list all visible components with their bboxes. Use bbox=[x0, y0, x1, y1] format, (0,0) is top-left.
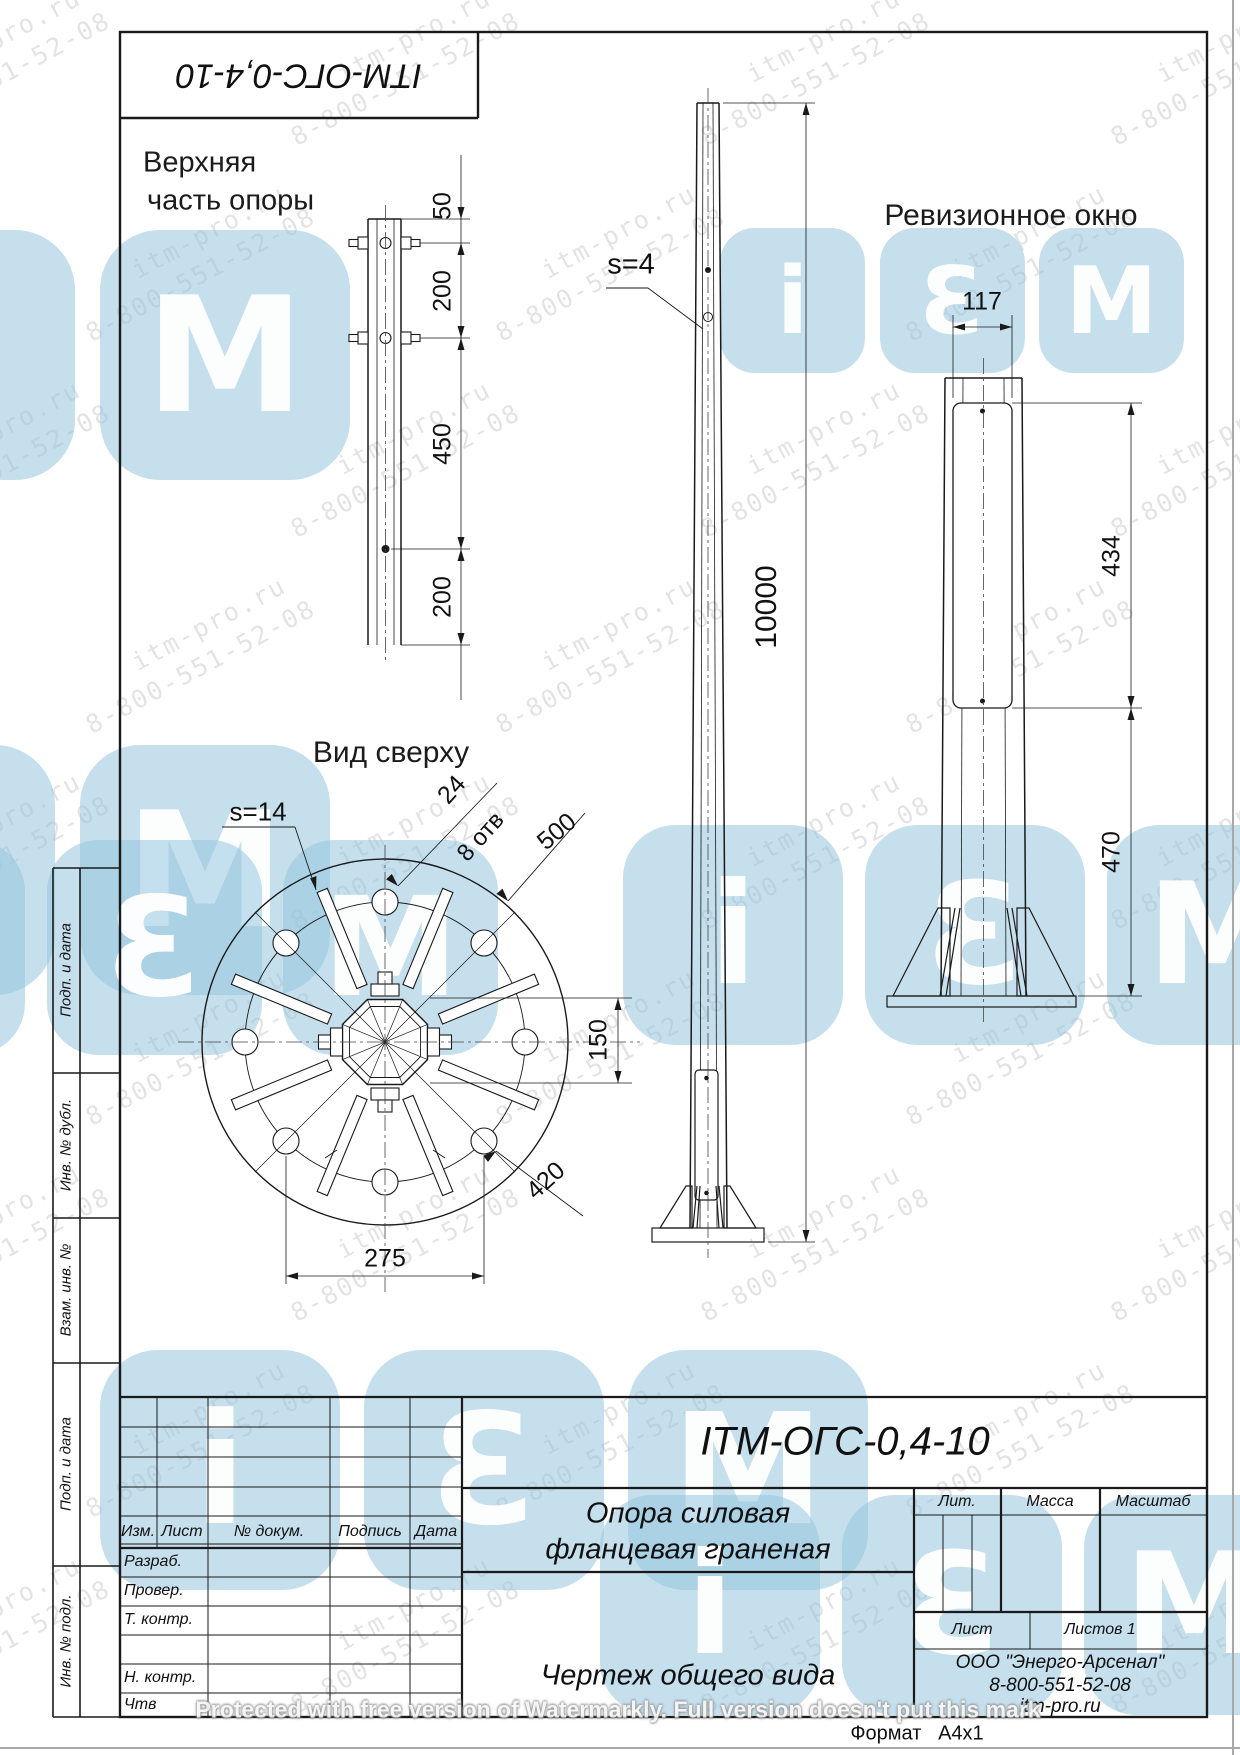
upper-view-title-line1: Верхняя bbox=[143, 147, 256, 180]
mass-header: Масса bbox=[1026, 1493, 1073, 1511]
dim-150: 150 bbox=[585, 1019, 614, 1061]
title-block-designation: ITM-ОГС-0,4-10 bbox=[700, 1420, 989, 1465]
staff-razrab: Разраб. bbox=[124, 1553, 182, 1571]
plan-view-title: Вид сверху bbox=[313, 736, 469, 770]
rev-header-date: Дата bbox=[415, 1523, 457, 1541]
revision-view bbox=[887, 315, 1142, 1022]
wall-thickness-label: s=4 bbox=[607, 249, 655, 282]
rev-header-list: Лист bbox=[161, 1523, 202, 1541]
sheet-label: Лист bbox=[951, 1621, 992, 1639]
staff-n-kontr: Н. контр. bbox=[124, 1669, 196, 1687]
dim-50: 50 bbox=[429, 192, 458, 220]
top-stamp-designation: ITM-ОГС-0,4-10 bbox=[176, 56, 422, 95]
staff-utv: Чтв bbox=[124, 1696, 156, 1714]
staff-t-kontr: Т. контр. bbox=[124, 1611, 193, 1629]
upper-view-title-line2: часть опоры bbox=[147, 185, 314, 218]
doc-type: Чертеж общего вида bbox=[541, 1660, 836, 1693]
rev-header-izm: Изм. bbox=[121, 1523, 155, 1541]
part-name-line2: фланцевая граненая bbox=[545, 1534, 830, 1567]
sidebar-item-vzam-inv: Взам. инв. № bbox=[58, 1244, 75, 1337]
dim-434: 434 bbox=[1098, 535, 1127, 577]
plan-wall-thickness: s=14 bbox=[229, 797, 286, 828]
dim-450: 450 bbox=[429, 423, 458, 465]
paper-edge-right bbox=[1232, 0, 1234, 1755]
dim-10000: 10000 bbox=[750, 565, 784, 648]
staff-prover: Провер. bbox=[124, 1582, 184, 1600]
company-phone: 8-800-551-52-08 bbox=[989, 1675, 1131, 1697]
scale-header: Масштаб bbox=[1116, 1493, 1191, 1511]
format-note: Формат A4x1 bbox=[850, 1723, 983, 1746]
sidebar-item-podp-data-1: Подп. и дата bbox=[58, 923, 75, 1017]
lit-header: Лит. bbox=[938, 1493, 975, 1511]
dim-275: 275 bbox=[364, 1245, 406, 1274]
dim-200-bottom: 200 bbox=[429, 576, 458, 618]
sheets-label: Листов 1 bbox=[1064, 1621, 1136, 1639]
plan-view bbox=[178, 783, 640, 1292]
rev-header-doc: № докум. bbox=[234, 1523, 304, 1541]
paper-edge-bottom bbox=[0, 1747, 1240, 1749]
drawing-sheet: itm-pro.ru8-800-551-52-08itm-pro.ru8-800… bbox=[0, 0, 1240, 1755]
watermarkly-protected-note: Protected with free version of Watermark… bbox=[195, 1697, 1040, 1724]
dim-200-top: 200 bbox=[429, 270, 458, 312]
part-name-line1: Опора силовая bbox=[586, 1498, 790, 1531]
rev-header-sign: Подпись bbox=[338, 1523, 401, 1541]
sheet-frame bbox=[120, 32, 1207, 1717]
sidebar-item-podp-data-2: Подп. и дата bbox=[58, 1417, 75, 1511]
format-label: Формат bbox=[850, 1723, 921, 1745]
sidebar-item-inv-dubl: Инв. № дубл. bbox=[58, 1099, 75, 1191]
dim-117: 117 bbox=[962, 288, 1002, 317]
company-name: ООО "Энерго-Арсенал" bbox=[956, 1652, 1165, 1674]
revision-view-title: Ревизионное окно bbox=[884, 199, 1137, 233]
sidebar-item-inv-podl: Инв. № подл. bbox=[58, 1594, 75, 1687]
dim-470: 470 bbox=[1098, 831, 1127, 873]
format-value: A4x1 bbox=[938, 1723, 984, 1745]
